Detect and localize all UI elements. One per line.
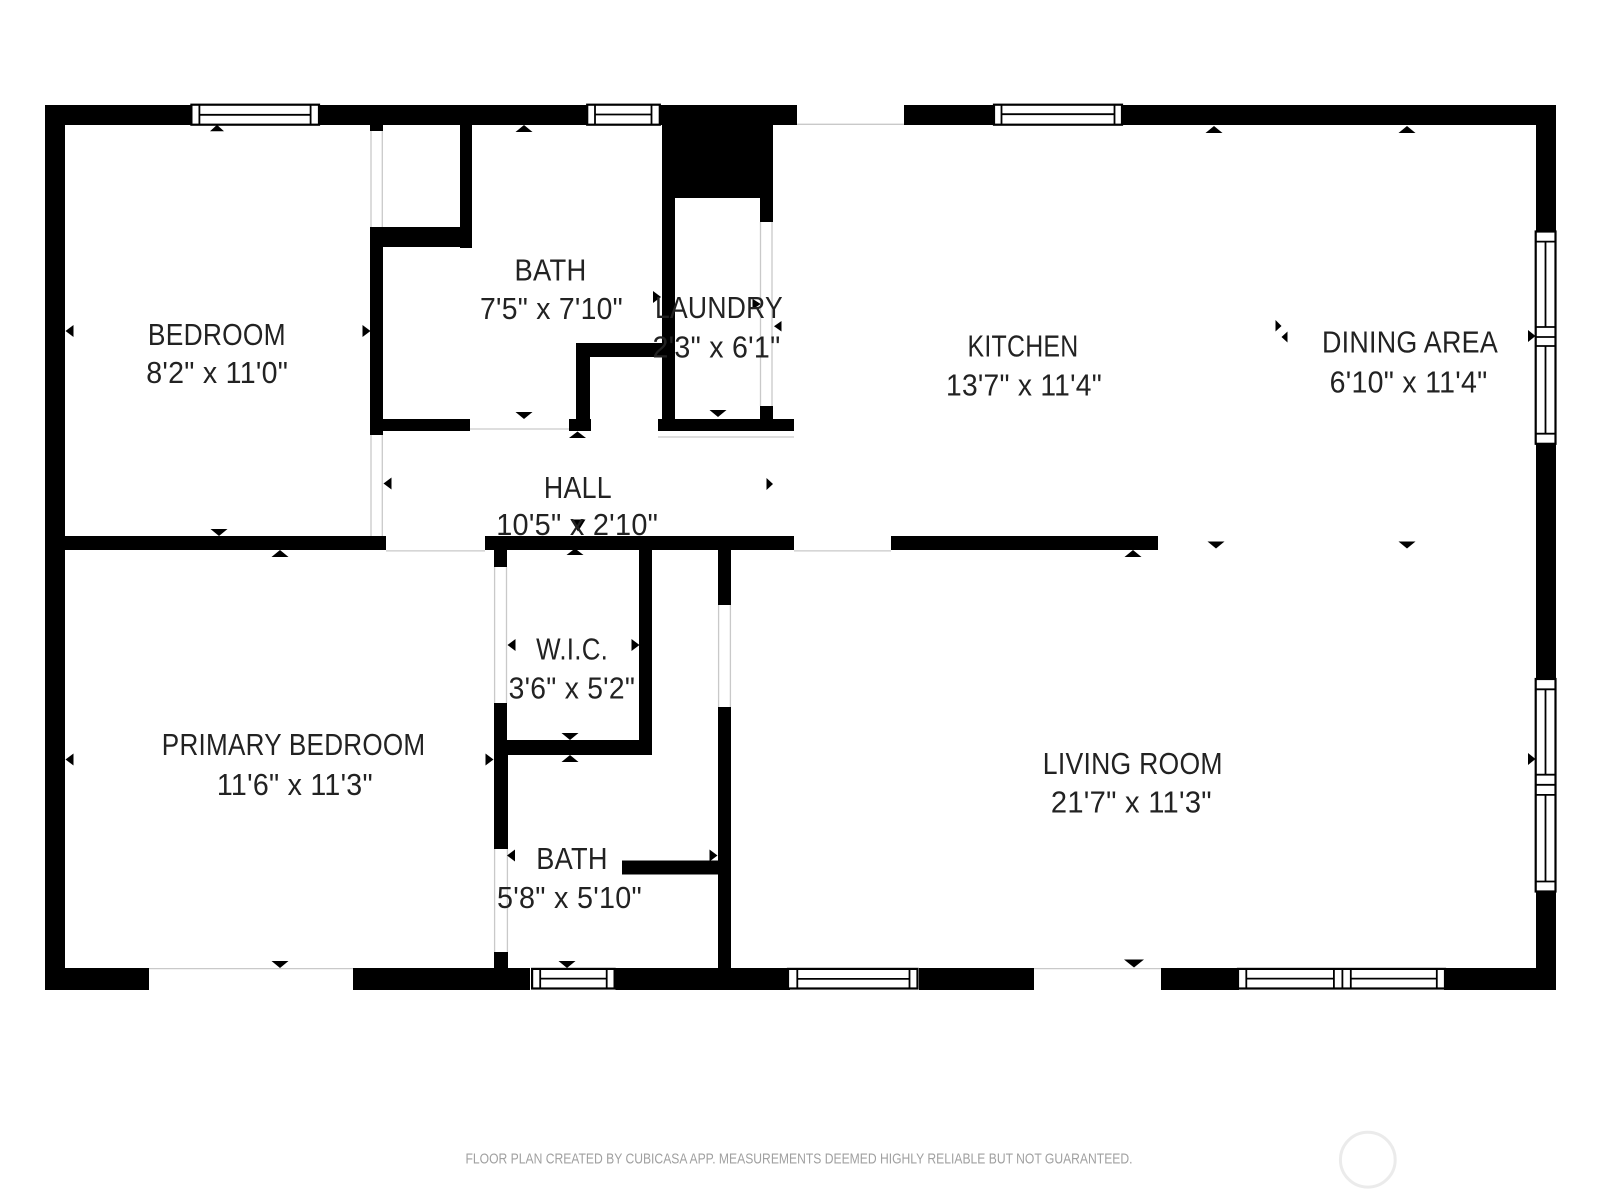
svg-text:11'6" x 11'3": 11'6" x 11'3" [217, 767, 373, 802]
svg-text:PRIMARY BEDROOM: PRIMARY BEDROOM [162, 727, 426, 762]
svg-text:BATH: BATH [536, 841, 608, 876]
svg-text:3'6" x 5'2": 3'6" x 5'2" [509, 671, 636, 706]
svg-text:BATH: BATH [515, 252, 587, 287]
svg-text:2'3" x 6'1": 2'3" x 6'1" [653, 329, 781, 364]
svg-text:LAUNDRY: LAUNDRY [655, 290, 783, 325]
svg-text:7'5" x 7'10": 7'5" x 7'10" [480, 291, 623, 326]
svg-text:KITCHEN: KITCHEN [968, 329, 1079, 364]
svg-text:HALL: HALL [544, 470, 612, 505]
svg-text:6'10" x 11'4": 6'10" x 11'4" [1330, 365, 1488, 400]
svg-text:DINING AREA: DINING AREA [1322, 325, 1498, 360]
svg-text:BEDROOM: BEDROOM [148, 317, 286, 352]
svg-text:13'7" x 11'4": 13'7" x 11'4" [946, 368, 1102, 403]
svg-text:10'5" x 2'10": 10'5" x 2'10" [496, 507, 658, 542]
svg-text:FLOOR PLAN CREATED BY CUBICASA: FLOOR PLAN CREATED BY CUBICASA APP. MEAS… [466, 1152, 1133, 1168]
svg-text:21'7" x 11'3": 21'7" x 11'3" [1051, 785, 1212, 820]
svg-text:LIVING ROOM: LIVING ROOM [1043, 746, 1223, 781]
svg-text:8'2" x 11'0": 8'2" x 11'0" [146, 355, 288, 390]
svg-text:W.I.C.: W.I.C. [536, 631, 608, 666]
svg-text:5'8" x 5'10": 5'8" x 5'10" [497, 880, 642, 915]
